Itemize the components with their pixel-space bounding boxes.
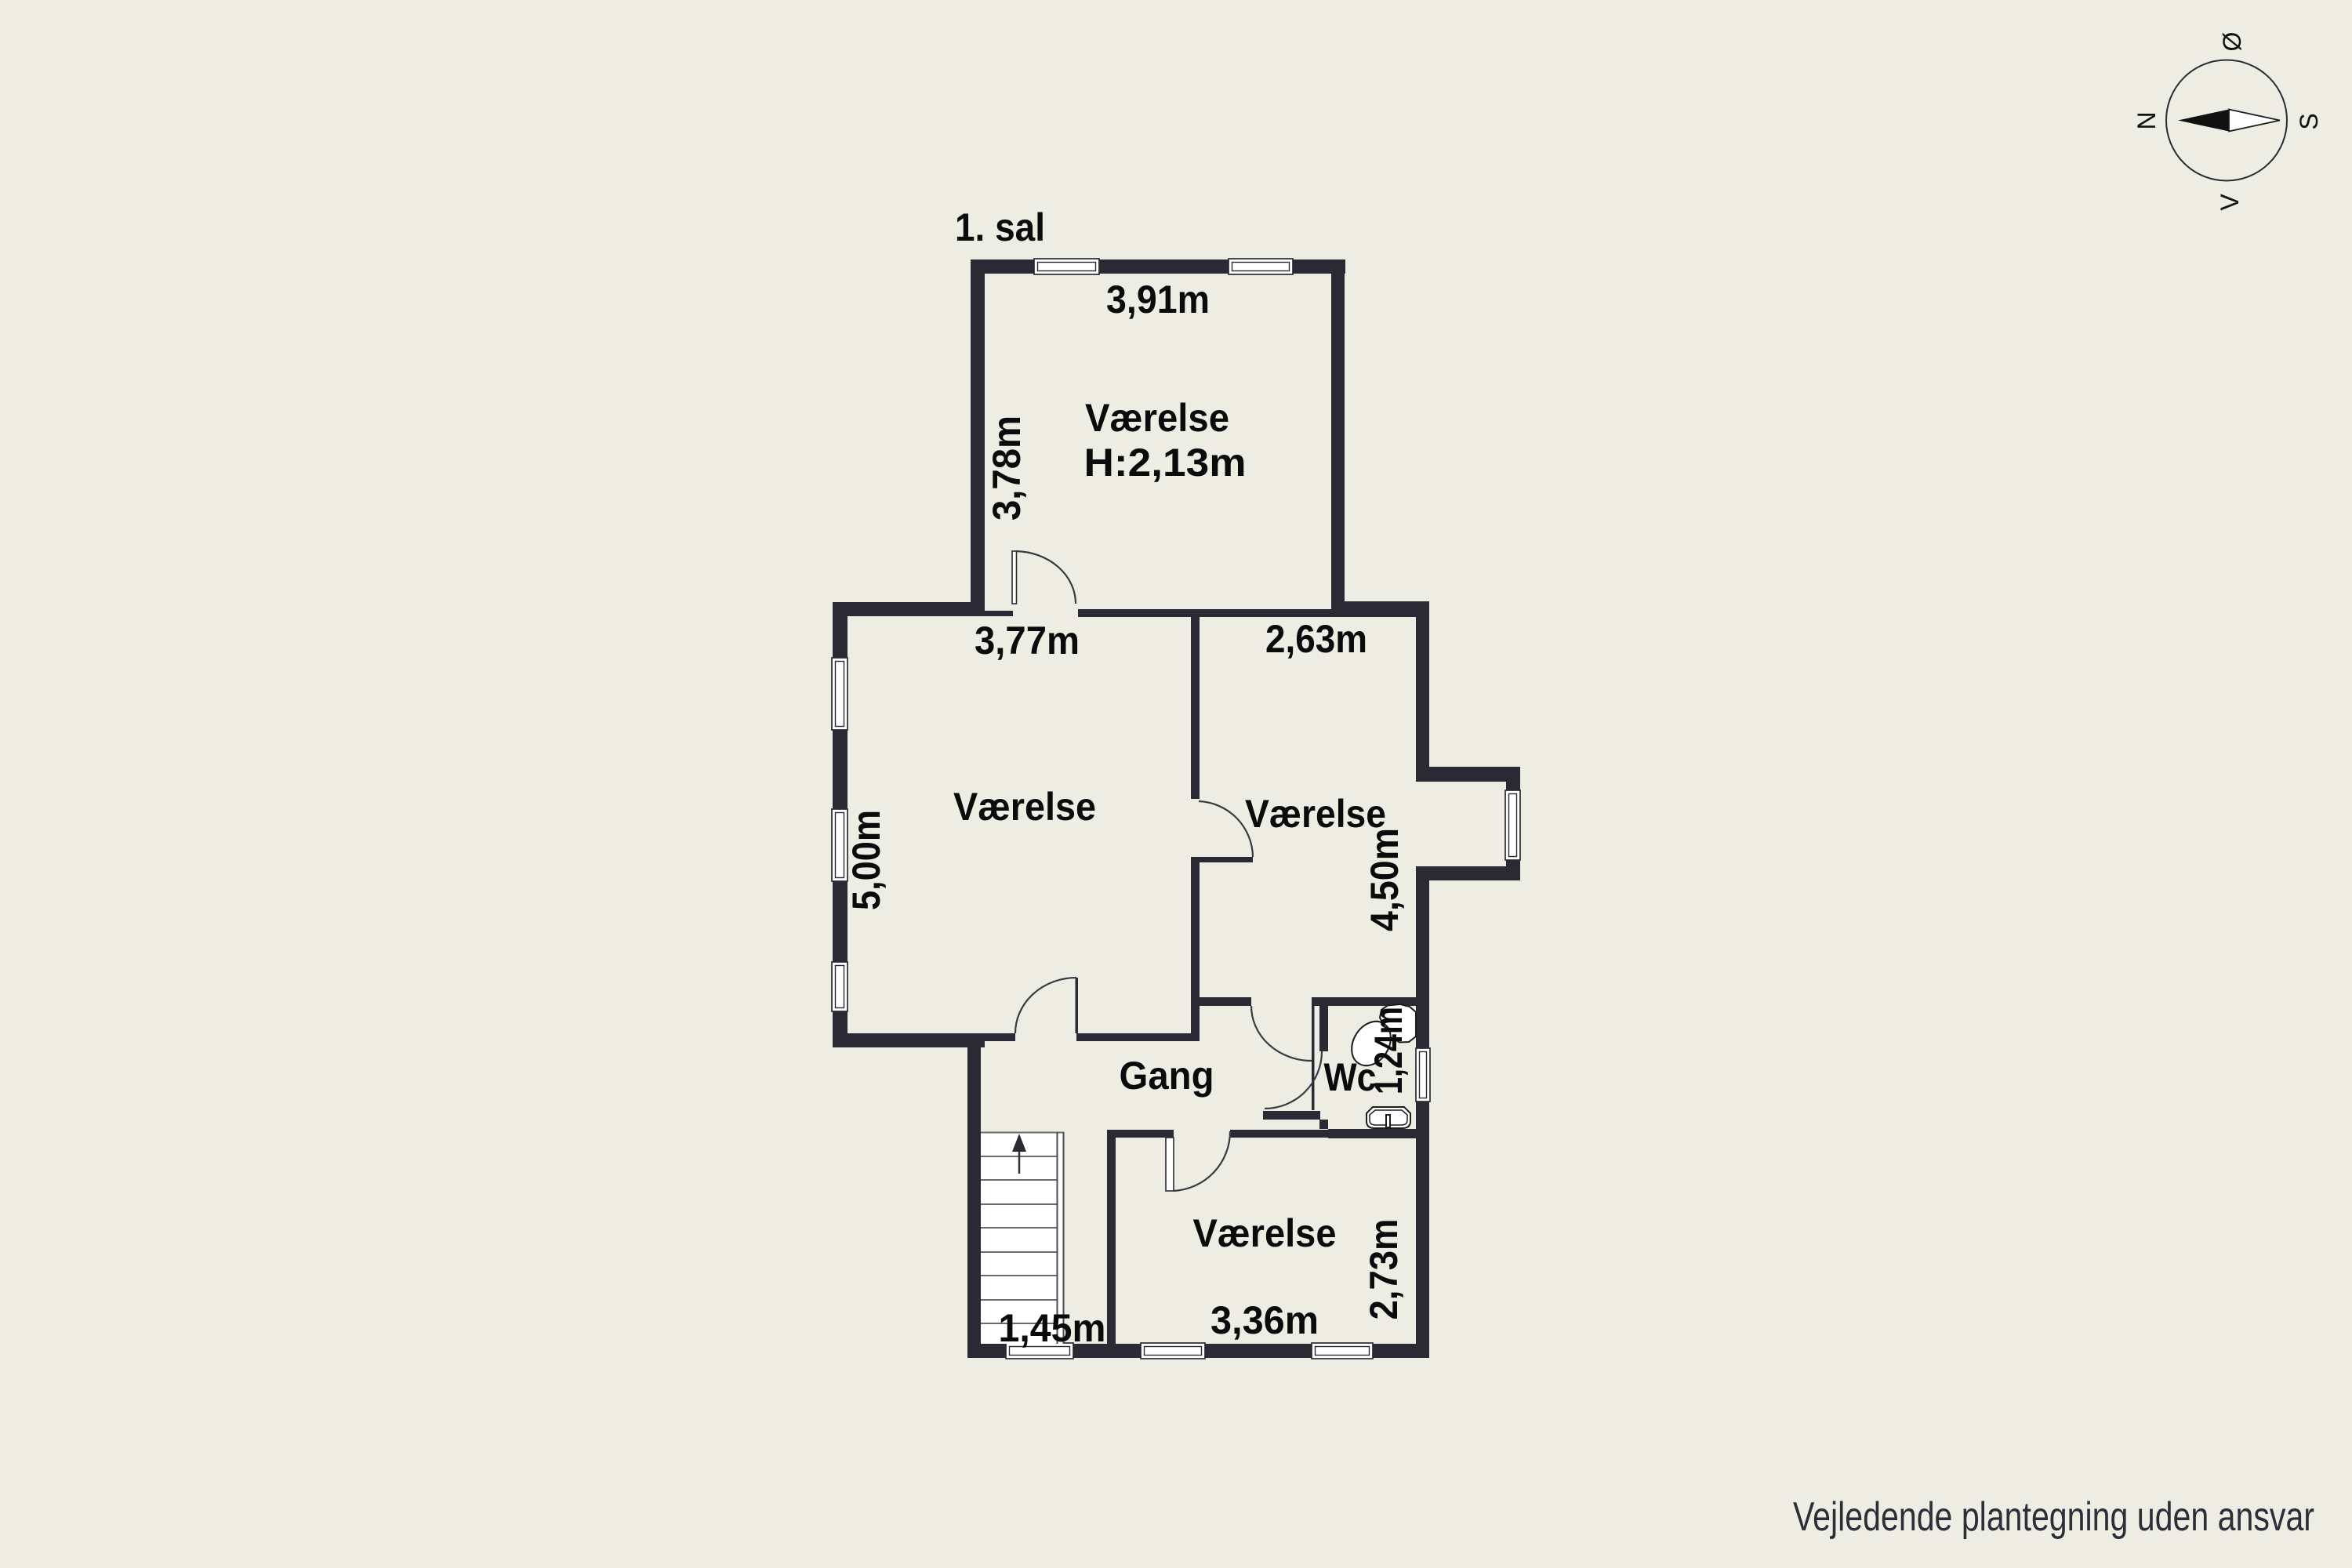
svg-text:5,00m: 5,00m — [844, 810, 888, 910]
svg-text:2,73m: 2,73m — [1362, 1219, 1406, 1320]
svg-text:1,24m: 1,24m — [1367, 1007, 1410, 1094]
svg-text:Værelse: Værelse — [1085, 396, 1229, 440]
svg-text:Gang: Gang — [1120, 1054, 1214, 1098]
svg-text:Værelse: Værelse — [953, 785, 1096, 829]
svg-text:2,63m: 2,63m — [1265, 617, 1367, 661]
svg-text:S: S — [2295, 113, 2323, 129]
svg-text:Vejledende plantegning uden an: Vejledende plantegning uden ansvar — [1793, 1494, 2314, 1540]
svg-text:4,50m: 4,50m — [1363, 828, 1406, 931]
svg-text:3,36m: 3,36m — [1210, 1298, 1319, 1342]
svg-text:V: V — [2216, 194, 2244, 211]
svg-text:Værelse: Værelse — [1193, 1211, 1337, 1255]
svg-text:3,91m: 3,91m — [1106, 278, 1210, 321]
svg-text:3,78m: 3,78m — [985, 416, 1029, 521]
svg-text:1,45m: 1,45m — [999, 1306, 1106, 1350]
svg-text:3,77m: 3,77m — [975, 619, 1080, 662]
svg-text:N: N — [2132, 111, 2161, 129]
svg-text:H:2,13m: H:2,13m — [1084, 441, 1247, 485]
svg-text:1. sal: 1. sal — [955, 205, 1045, 249]
svg-text:Ø: Ø — [2218, 32, 2246, 52]
